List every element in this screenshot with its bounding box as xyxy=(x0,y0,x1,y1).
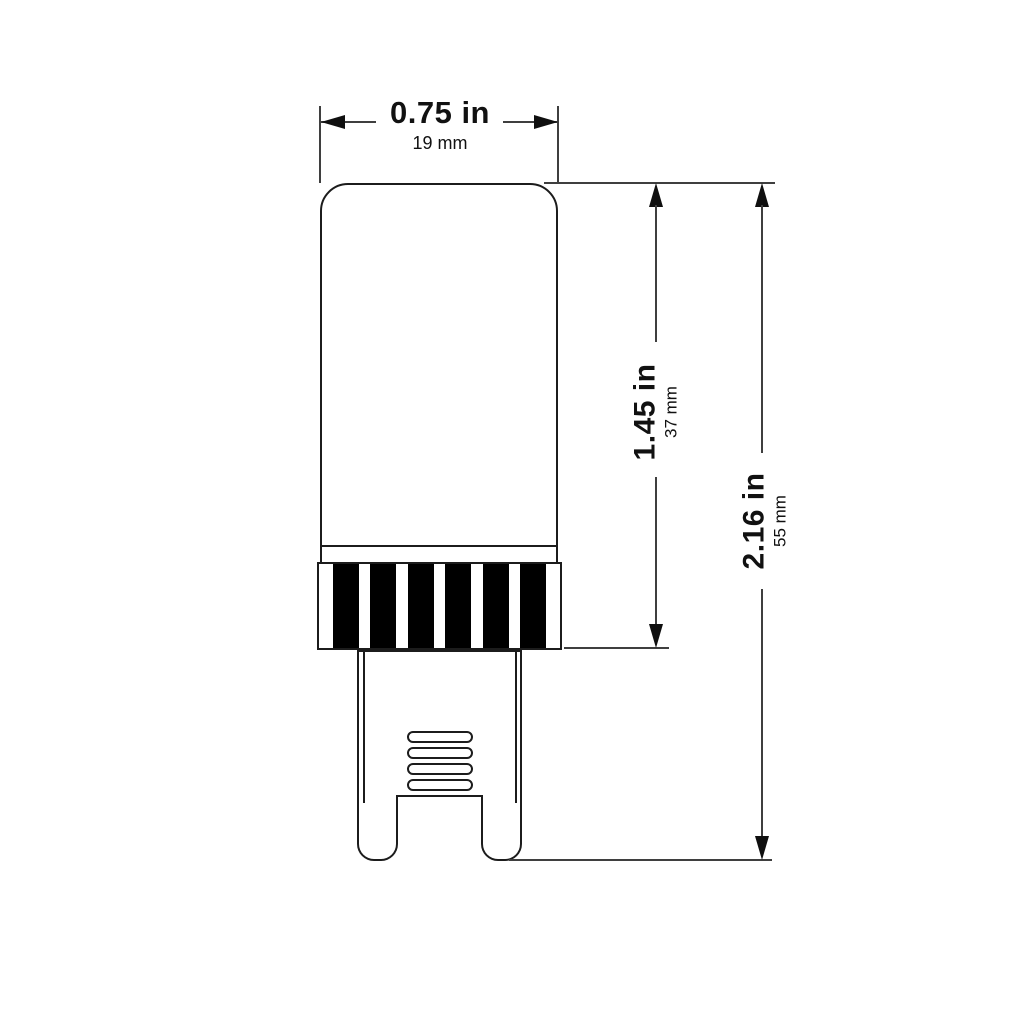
dimension-line-body-height-lower xyxy=(655,477,657,625)
base-vent-slot xyxy=(407,763,473,775)
dimension-line-overall-height-lower xyxy=(761,589,763,836)
arrowhead-up-icon xyxy=(755,183,769,207)
base-inner-wall-right xyxy=(515,650,517,803)
collar-stripe xyxy=(483,564,509,648)
collar-stripe xyxy=(445,564,471,648)
width-label-inches: 0.75 in xyxy=(330,97,550,128)
body-height-label: 1.45 in 37 mm xyxy=(631,360,682,465)
base-vent-slots xyxy=(407,731,473,795)
g9-bulb-dimension-diagram: 0.75 in 19 mm 1.45 in 37 mm 2.16 in 55 m… xyxy=(0,0,1024,1024)
collar-stripe xyxy=(370,564,396,648)
body-height-label-mm: 37 mm xyxy=(663,364,682,461)
overall-height-label: 2.16 in 55 mm xyxy=(740,469,791,574)
bulb-collar-striped-band xyxy=(317,562,562,650)
dimension-line-overall-height-upper xyxy=(761,205,763,453)
bulb-pin-right xyxy=(481,795,522,861)
base-vent-slot xyxy=(407,779,473,791)
width-label-mm: 19 mm xyxy=(330,134,550,154)
base-vent-slot xyxy=(407,747,473,759)
arrowhead-down-icon xyxy=(755,836,769,860)
overall-height-label-inches: 2.16 in xyxy=(740,473,770,570)
bulb-body xyxy=(320,183,558,547)
body-height-label-inches: 1.45 in xyxy=(631,364,661,461)
overall-height-label-mm: 55 mm xyxy=(772,473,791,570)
arrowhead-up-icon xyxy=(649,183,663,207)
base-vent-slot xyxy=(407,731,473,743)
base-inner-wall-left xyxy=(363,650,365,803)
collar-stripe xyxy=(333,564,359,648)
extension-line-pin-bottom xyxy=(509,859,772,861)
bulb-pin-left xyxy=(357,795,398,861)
collar-stripe xyxy=(520,564,546,648)
dimension-line-body-height-upper xyxy=(655,205,657,342)
collar-stripe xyxy=(408,564,434,648)
arrowhead-down-icon xyxy=(649,624,663,648)
